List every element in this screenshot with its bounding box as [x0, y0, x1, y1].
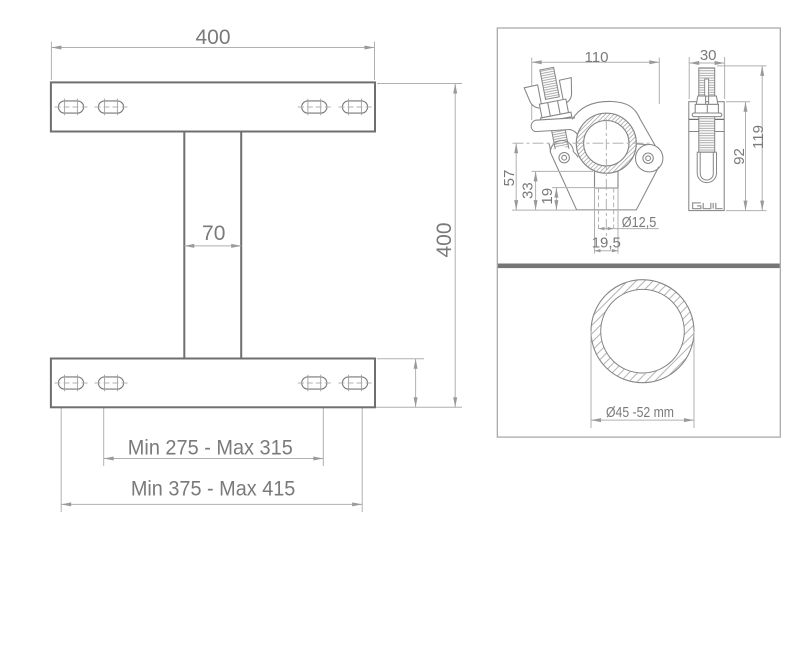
svg-text:110: 110	[585, 49, 609, 66]
svg-text:57: 57	[501, 170, 518, 187]
svg-text:19: 19	[539, 188, 556, 205]
svg-text:92: 92	[731, 148, 748, 165]
svg-text:70: 70	[202, 222, 225, 245]
svg-text:400: 400	[433, 222, 456, 257]
svg-text:Min 375 - Max 415: Min 375 - Max 415	[131, 478, 296, 501]
svg-text:119: 119	[750, 125, 767, 149]
svg-text:19,5: 19,5	[592, 234, 621, 251]
svg-text:400: 400	[195, 26, 230, 49]
svg-text:Ø45 -52 mm: Ø45 -52 mm	[606, 404, 674, 421]
svg-text:Min 275 - Max 315: Min 275 - Max 315	[128, 437, 293, 460]
svg-text:Ø12,5: Ø12,5	[622, 214, 657, 231]
svg-text:30: 30	[700, 47, 717, 64]
svg-text:33: 33	[520, 182, 537, 199]
